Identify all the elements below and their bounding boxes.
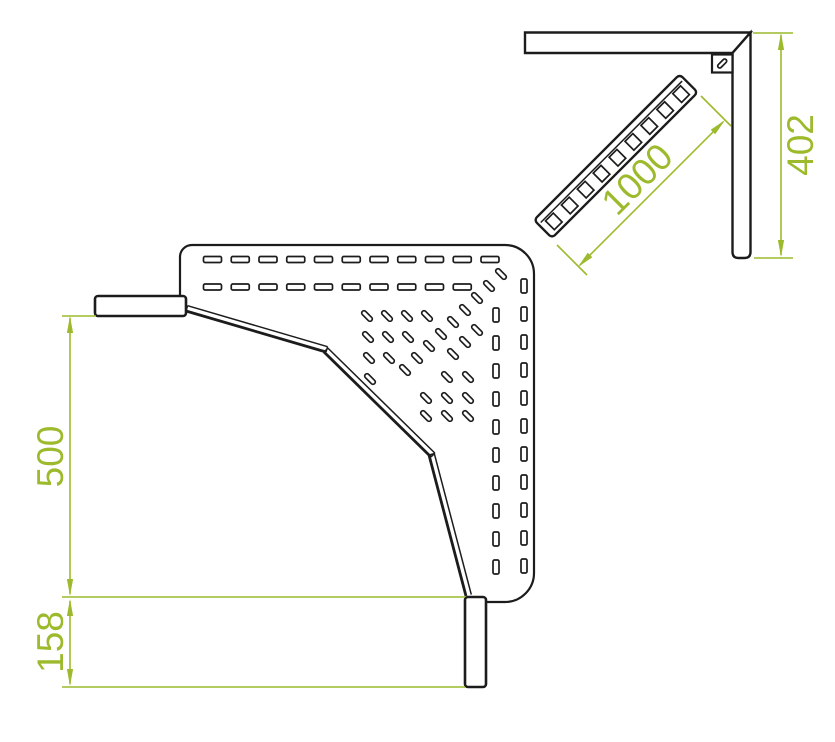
perforation-slot	[231, 284, 249, 290]
perforation-slot	[381, 310, 393, 322]
perforation-slot-diagonal	[399, 364, 411, 376]
elevation-view	[525, 33, 751, 259]
dimension-label-402: 402	[780, 114, 821, 176]
perforation-slot-diagonal	[447, 316, 459, 328]
perforation-slot-diagonal	[441, 410, 453, 422]
perforation-slot	[362, 331, 374, 343]
perforation-slot-diagonal	[441, 392, 453, 404]
perforation-columns-right	[493, 279, 527, 574]
perforation-slot	[441, 392, 453, 404]
perforation-slot-diagonal	[483, 280, 495, 292]
perforation-slot	[231, 257, 249, 263]
perforation-slot-diagonal	[361, 310, 373, 322]
perforation-slot	[447, 316, 459, 328]
perforation-slot	[382, 331, 394, 343]
chamfer-outer-edge	[186, 311, 466, 596]
perforation-slot	[493, 336, 499, 350]
perforation-slot	[342, 257, 360, 263]
perforation-slot	[453, 257, 471, 263]
perforation-slot	[370, 257, 388, 263]
perforation-slot-diagonal	[471, 324, 483, 336]
extension-lines-500	[62, 316, 465, 597]
perforation-slot	[493, 560, 499, 574]
perforation-slot	[401, 310, 413, 322]
arrowhead-down-icon	[778, 240, 784, 257]
technical-drawing-page: 500 158 402 1000	[0, 0, 835, 742]
perforation-slot-diagonal	[383, 352, 395, 364]
perforation-slot	[521, 419, 527, 433]
arrowhead-down-icon	[67, 579, 73, 596]
arrowhead-up-icon	[778, 33, 784, 50]
perforation-slot	[462, 410, 474, 422]
perforation-slot	[462, 392, 474, 404]
perforation-slot	[287, 257, 305, 263]
perforation-slot	[370, 284, 388, 290]
perforation-slot	[521, 503, 527, 517]
perforation-slot	[493, 504, 499, 518]
perforation-slot	[435, 328, 447, 340]
perforation-slot	[447, 348, 459, 360]
perforation-slot	[459, 304, 471, 316]
perforation-slot-diagonal	[462, 410, 474, 422]
perforation-slot	[421, 310, 433, 322]
perforation-slot	[453, 284, 471, 290]
perforation-slot	[363, 352, 375, 364]
perforation-slot	[411, 352, 423, 364]
perforation-slot-diagonal	[435, 328, 447, 340]
perforation-slot	[364, 373, 376, 385]
perforation-slot-diagonal	[447, 348, 459, 360]
perforation-slot-diagonal	[459, 336, 471, 348]
perforation-slot-diagonal	[363, 352, 375, 364]
perforation-slot-diagonal	[441, 371, 453, 383]
perforation-slot	[426, 284, 444, 290]
perforation-slot	[493, 448, 499, 462]
perforation-slot	[315, 284, 333, 290]
perforation-slot	[493, 392, 499, 406]
perforation-slot	[493, 532, 499, 546]
perforation-slot	[398, 284, 416, 290]
perforation-slot	[483, 280, 495, 292]
perforation-slot	[521, 279, 527, 293]
perforation-slot	[398, 257, 416, 263]
perforation-slot-diagonal	[423, 340, 435, 352]
perforation-slot-diagonal	[402, 331, 414, 343]
perforation-slot-diagonal	[462, 371, 474, 383]
left-end-rail	[95, 296, 186, 316]
perforation-slot	[426, 257, 444, 263]
vertical-tray-arm	[733, 33, 751, 259]
perforation-slot	[342, 284, 360, 290]
arrowhead-up-icon	[67, 316, 73, 333]
perforation-slot-diagonal	[459, 304, 471, 316]
perforation-slot	[521, 447, 527, 461]
perforation-slot	[204, 284, 222, 290]
perforation-slot	[493, 420, 499, 434]
perforation-slot	[383, 352, 395, 364]
perforation-slot	[259, 284, 277, 290]
perforation-slot	[521, 335, 527, 349]
bottom-end-rail	[465, 597, 486, 687]
dimension-label-158: 158	[30, 611, 71, 673]
horizontal-tray-arm	[525, 33, 751, 54]
perforation-slot	[259, 257, 277, 263]
perforation-slot	[459, 336, 471, 348]
perforation-slot-diagonal	[495, 268, 507, 280]
perforation-slot	[420, 392, 432, 404]
perforation-slot	[521, 531, 527, 545]
perforation-slot-diagonal	[420, 392, 432, 404]
perforation-slot	[481, 257, 499, 263]
perforation-slot	[521, 363, 527, 377]
perforation-slot	[423, 340, 435, 352]
perforation-slot	[420, 410, 432, 422]
perforation-slot	[493, 364, 499, 378]
perforation-slot	[399, 364, 411, 376]
perforation-slot	[521, 307, 527, 321]
perforation-slot-diagonal	[471, 292, 483, 304]
perforation-slot	[441, 410, 453, 422]
perforation-slot	[493, 308, 499, 322]
perforation-diagonal-field	[361, 268, 507, 422]
perforation-slot	[402, 331, 414, 343]
perforation-slot	[471, 292, 483, 304]
perforation-slot	[495, 268, 507, 280]
perforation-slot	[471, 324, 483, 336]
perforation-slot-diagonal	[382, 331, 394, 343]
perforation-slot	[493, 476, 499, 490]
perforation-slot-diagonal	[462, 392, 474, 404]
perforation-slot-diagonal	[420, 410, 432, 422]
perforation-slot	[361, 310, 373, 322]
perforation-slot-diagonal	[381, 310, 393, 322]
perforation-slot-diagonal	[421, 310, 433, 322]
dimension-500: 500	[30, 316, 465, 597]
perforation-slot	[521, 475, 527, 489]
perforation-slot	[441, 371, 453, 383]
technical-drawing-canvas: 500 158 402 1000	[0, 0, 835, 742]
perforation-slot	[287, 284, 305, 290]
dimension-402: 402	[753, 33, 821, 258]
perforation-slot	[521, 391, 527, 405]
perforation-slot	[204, 257, 222, 263]
perforation-slot-diagonal	[362, 331, 374, 343]
dimension-label-500: 500	[30, 426, 71, 488]
perforation-slot-diagonal	[411, 352, 423, 364]
perforation-slot-diagonal	[364, 373, 376, 385]
perforation-rows-top	[204, 257, 500, 291]
perforation-slot	[521, 559, 527, 573]
dimension-158: 158	[30, 599, 465, 687]
perforation-slot	[462, 371, 474, 383]
chamfer-joint-caps	[186, 306, 435, 457]
perforation-slot	[315, 257, 333, 263]
plan-view	[95, 245, 534, 687]
perforation-slot-diagonal	[401, 310, 413, 322]
